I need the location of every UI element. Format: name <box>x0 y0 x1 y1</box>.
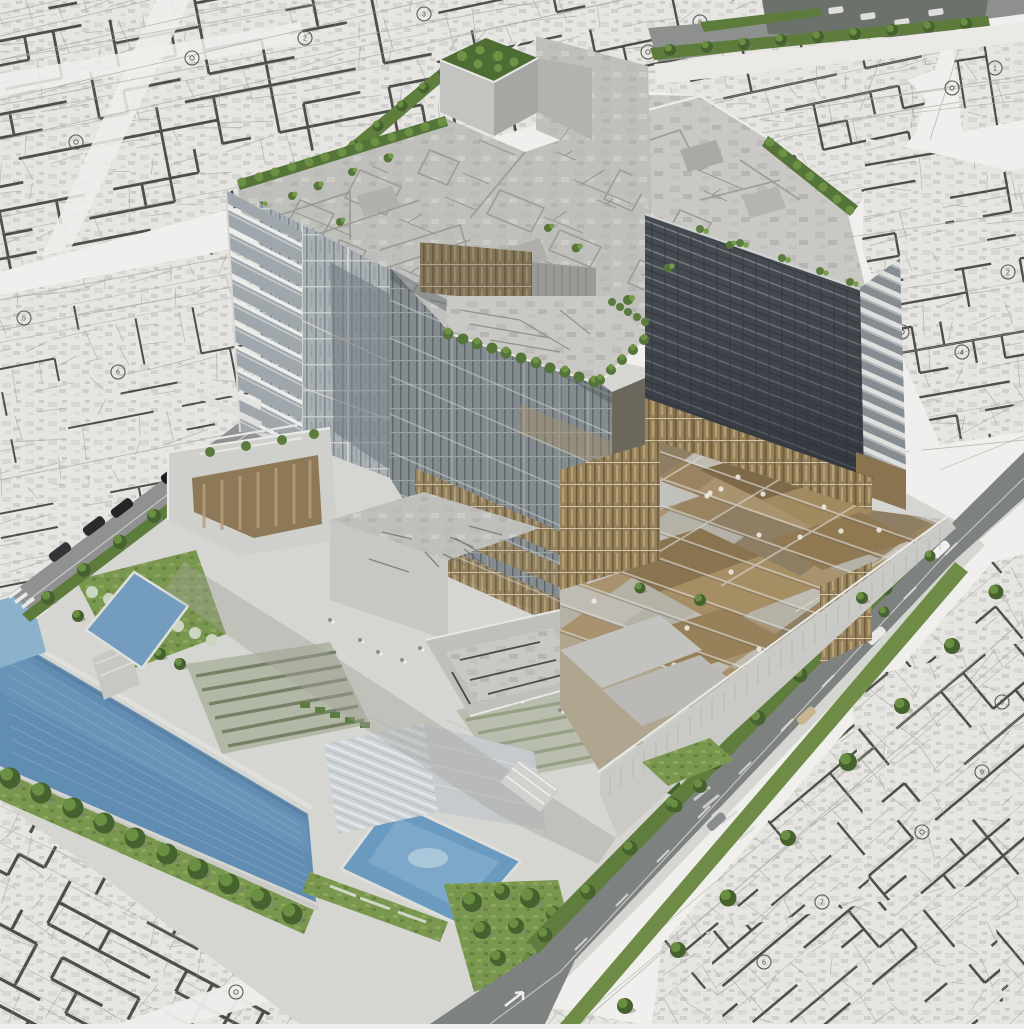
svg-text:6: 6 <box>762 959 766 966</box>
svg-text:0: 0 <box>1000 699 1004 706</box>
svg-text:4: 4 <box>960 349 964 356</box>
svg-text:2: 2 <box>1006 269 1010 276</box>
svg-text:3: 3 <box>422 11 426 18</box>
svg-text:2: 2 <box>303 35 307 42</box>
svg-text:9: 9 <box>980 769 984 776</box>
svg-text:7: 7 <box>820 899 824 906</box>
svg-text:6: 6 <box>116 369 120 376</box>
svg-text:5: 5 <box>22 315 26 322</box>
svg-text:1: 1 <box>993 65 997 72</box>
